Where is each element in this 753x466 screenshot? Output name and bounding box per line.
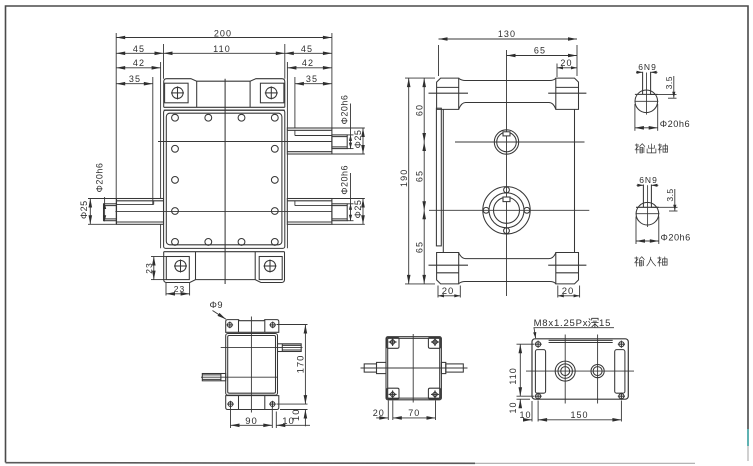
svg-text:65: 65 [414, 241, 424, 253]
svg-text:45: 45 [133, 44, 145, 54]
svg-text:Φ20h6: Φ20h6 [94, 163, 104, 193]
svg-text:45: 45 [301, 44, 313, 54]
svg-text:20: 20 [562, 286, 575, 297]
svg-text:6N9: 6N9 [639, 175, 658, 185]
svg-text:3.5: 3.5 [665, 188, 675, 201]
svg-text:200: 200 [214, 28, 232, 38]
svg-text:35: 35 [306, 74, 318, 84]
svg-text:23: 23 [174, 284, 185, 294]
svg-text:10: 10 [519, 410, 531, 420]
svg-text:10: 10 [508, 401, 518, 413]
svg-text:20: 20 [442, 286, 455, 297]
svg-text:Φ20h6: Φ20h6 [340, 165, 350, 195]
svg-text:Φ20h6: Φ20h6 [660, 119, 690, 129]
svg-text:Φ25: Φ25 [353, 200, 363, 219]
svg-text:150: 150 [570, 410, 588, 420]
svg-text:90: 90 [245, 416, 258, 427]
svg-text:65: 65 [414, 170, 424, 182]
svg-text:Φ20h6: Φ20h6 [661, 232, 691, 242]
svg-text:Φ25: Φ25 [79, 200, 89, 219]
svg-text:190: 190 [399, 169, 409, 187]
svg-text:70: 70 [408, 408, 420, 418]
svg-text:130: 130 [498, 29, 516, 39]
svg-text:60: 60 [414, 104, 424, 116]
svg-text:10: 10 [282, 416, 295, 427]
svg-text:Φ9: Φ9 [210, 300, 224, 310]
svg-text:170: 170 [296, 355, 307, 374]
svg-text:42: 42 [133, 58, 145, 68]
svg-text:23: 23 [144, 262, 154, 273]
svg-text:Φ20h6: Φ20h6 [340, 95, 350, 125]
svg-text:42: 42 [302, 58, 314, 68]
svg-text:20: 20 [373, 408, 385, 418]
svg-text:65: 65 [534, 46, 546, 56]
svg-text:110: 110 [508, 367, 518, 384]
svg-text:35: 35 [129, 74, 141, 84]
svg-text:3.5: 3.5 [664, 76, 674, 89]
svg-text:Φ25: Φ25 [353, 130, 363, 149]
svg-text:110: 110 [213, 44, 231, 54]
svg-text:20: 20 [560, 58, 572, 68]
svg-text:6N9: 6N9 [638, 62, 657, 72]
